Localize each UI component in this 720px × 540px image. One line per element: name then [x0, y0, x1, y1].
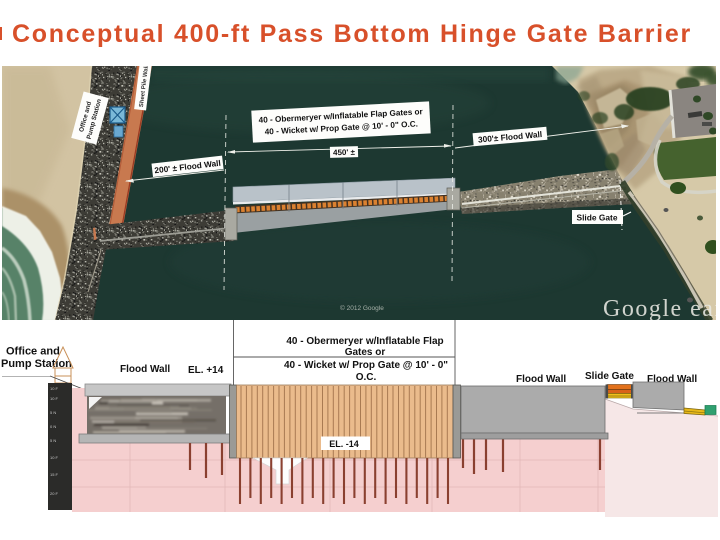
- svg-text:Flood Wall: Flood Wall: [120, 364, 170, 375]
- svg-text:20 F: 20 F: [50, 491, 59, 496]
- svg-text:Flood Wall: Flood Wall: [516, 374, 566, 385]
- svg-text:450' ±: 450' ±: [333, 148, 356, 158]
- svg-text:5 N: 5 N: [50, 410, 56, 415]
- svg-text:EL. -14: EL. -14: [329, 439, 359, 449]
- svg-text:Office and: Office and: [6, 346, 60, 358]
- svg-text:10 F: 10 F: [50, 386, 59, 391]
- svg-text:5 N: 5 N: [50, 438, 56, 443]
- svg-text:Slide Gate: Slide Gate: [577, 213, 618, 223]
- svg-text:Google ear: Google ear: [603, 296, 720, 322]
- svg-text:15 F: 15 F: [50, 472, 59, 477]
- svg-text:EL. +14: EL. +14: [188, 365, 224, 376]
- svg-text:Gates or: Gates or: [345, 347, 386, 358]
- svg-text:40 - Obermeryer w/Inflatable F: 40 - Obermeryer w/Inflatable Flap: [286, 336, 443, 347]
- svg-text:40 - Wicket w/ Prop Gate @ 10': 40 - Wicket w/ Prop Gate @ 10' - 0": [284, 360, 448, 371]
- svg-text:Slide Gate: Slide Gate: [585, 371, 634, 382]
- svg-text:© 2012 Google: © 2012 Google: [340, 304, 384, 312]
- svg-text:10 F: 10 F: [50, 396, 59, 401]
- svg-text:O.C.: O.C.: [356, 372, 377, 383]
- svg-text:10 F: 10 F: [50, 455, 59, 460]
- svg-text:0 N: 0 N: [50, 424, 56, 429]
